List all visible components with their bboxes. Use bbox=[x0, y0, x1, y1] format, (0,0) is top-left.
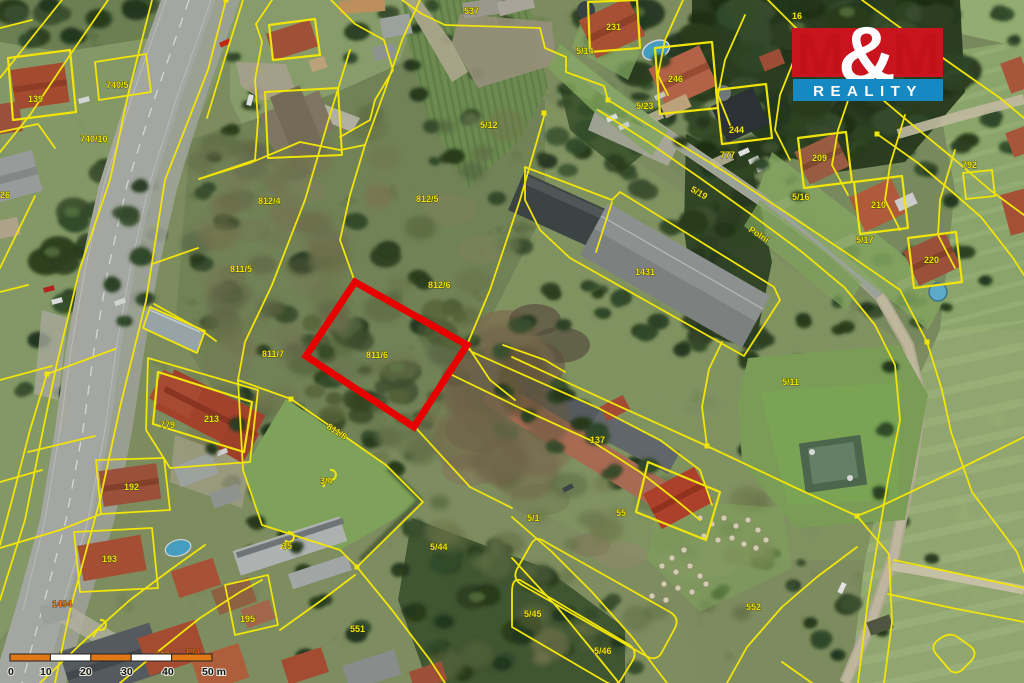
svg-text:30: 30 bbox=[121, 666, 133, 678]
svg-text:50 m: 50 m bbox=[202, 666, 226, 678]
svg-text:5/45: 5/45 bbox=[524, 609, 542, 619]
svg-text:5/44: 5/44 bbox=[430, 542, 448, 552]
svg-text:139: 139 bbox=[28, 94, 43, 104]
svg-text:192: 192 bbox=[124, 482, 139, 492]
svg-text:0: 0 bbox=[8, 666, 14, 678]
svg-text:812/5: 812/5 bbox=[416, 194, 439, 204]
svg-text:812/6: 812/6 bbox=[428, 280, 451, 290]
svg-text:779: 779 bbox=[160, 420, 175, 430]
svg-text:40: 40 bbox=[162, 666, 174, 678]
svg-text:811/6: 811/6 bbox=[366, 350, 388, 360]
svg-text:231: 231 bbox=[606, 22, 621, 32]
svg-text:5/14: 5/14 bbox=[576, 46, 594, 56]
svg-text:812/4: 812/4 bbox=[258, 196, 281, 206]
svg-text:REALITY: REALITY bbox=[813, 83, 923, 100]
svg-text:811/5: 811/5 bbox=[230, 264, 252, 274]
svg-text:246: 246 bbox=[668, 74, 683, 84]
svg-text:210: 210 bbox=[871, 200, 886, 210]
svg-text:137: 137 bbox=[590, 435, 605, 445]
svg-text:5/16: 5/16 bbox=[792, 192, 810, 202]
svg-text:M: M bbox=[796, 22, 844, 87]
svg-text:1494: 1494 bbox=[52, 599, 72, 609]
svg-text:55: 55 bbox=[616, 508, 626, 518]
svg-text:195: 195 bbox=[240, 614, 255, 624]
svg-text:35: 35 bbox=[282, 541, 292, 551]
svg-text:26: 26 bbox=[0, 190, 10, 200]
svg-text:552: 552 bbox=[746, 602, 761, 612]
svg-text:213: 213 bbox=[204, 414, 219, 424]
svg-text:5/1: 5/1 bbox=[527, 513, 540, 523]
svg-text:792: 792 bbox=[962, 160, 977, 170]
svg-text:193: 193 bbox=[102, 554, 117, 564]
svg-text:5/46: 5/46 bbox=[594, 646, 612, 656]
svg-text:551: 551 bbox=[350, 624, 365, 634]
svg-text:M: M bbox=[892, 22, 940, 87]
svg-text:20: 20 bbox=[80, 666, 92, 678]
svg-text:740/10: 740/10 bbox=[80, 134, 108, 144]
svg-text:5/12: 5/12 bbox=[480, 120, 498, 130]
svg-text:220: 220 bbox=[924, 255, 939, 265]
svg-text:5/17: 5/17 bbox=[856, 235, 874, 245]
svg-text:5/23: 5/23 bbox=[636, 101, 654, 111]
svg-text:209: 209 bbox=[812, 153, 827, 163]
svg-text:10: 10 bbox=[40, 666, 52, 678]
svg-text:244: 244 bbox=[729, 125, 744, 135]
svg-text:3/4: 3/4 bbox=[320, 476, 333, 486]
svg-text:537: 537 bbox=[464, 6, 479, 16]
svg-text:811/7: 811/7 bbox=[262, 349, 284, 359]
svg-text:5/11: 5/11 bbox=[782, 377, 799, 387]
svg-text:777: 777 bbox=[720, 150, 735, 160]
svg-text:1431: 1431 bbox=[635, 267, 655, 277]
svg-text:740/5: 740/5 bbox=[106, 80, 129, 90]
svg-text:16: 16 bbox=[792, 11, 802, 21]
